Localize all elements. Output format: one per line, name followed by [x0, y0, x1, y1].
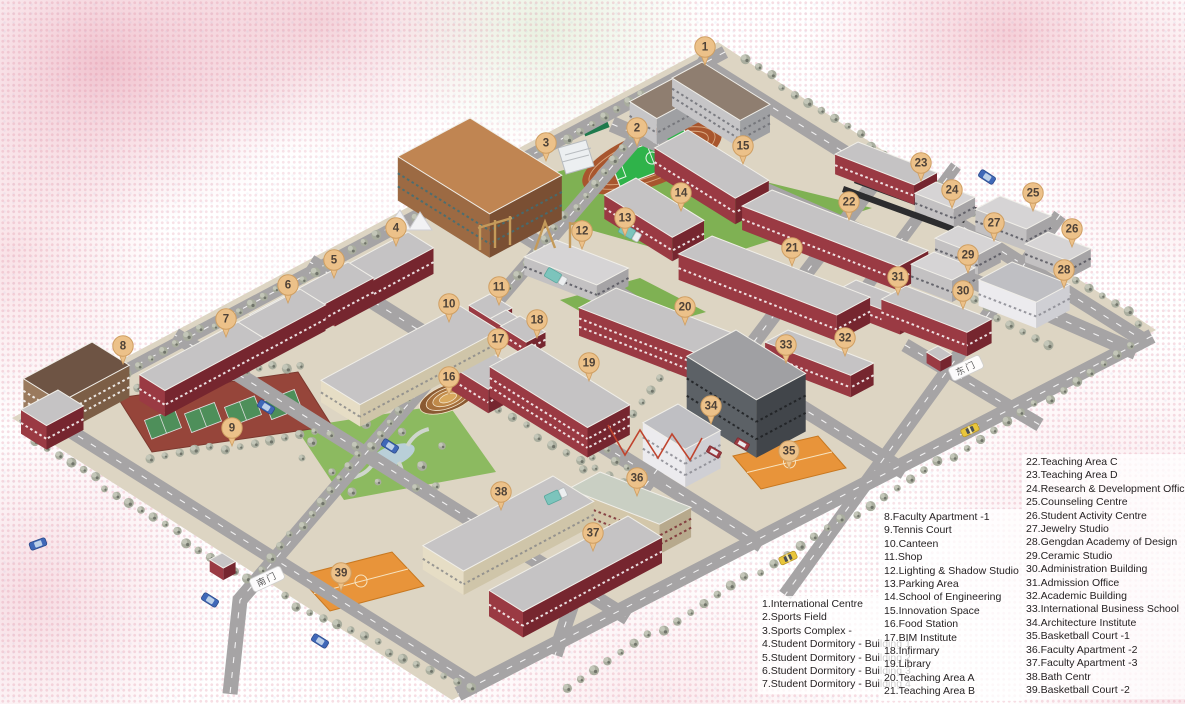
legend-item: 24.Research & Development Office	[1026, 483, 1185, 496]
svg-text:35: 35	[783, 446, 796, 458]
tree	[656, 374, 664, 382]
tree	[336, 475, 343, 482]
tree	[579, 465, 587, 473]
tree	[603, 657, 611, 665]
tree	[332, 619, 342, 629]
tree	[251, 440, 259, 448]
tree	[577, 676, 585, 684]
tree	[508, 413, 517, 422]
tree	[181, 538, 191, 548]
svg-text:22: 22	[843, 197, 856, 209]
tree	[398, 428, 406, 436]
svg-text:17: 17	[492, 334, 505, 346]
tree	[699, 599, 708, 608]
tree	[195, 547, 203, 555]
tree	[1124, 306, 1134, 316]
tree	[611, 457, 620, 466]
tree	[563, 449, 571, 457]
legend-item: 33.International Business School	[1026, 603, 1185, 616]
svg-text:37: 37	[587, 528, 600, 540]
tree	[375, 479, 382, 486]
tree	[644, 630, 652, 638]
tree	[375, 638, 382, 645]
svg-text:23: 23	[915, 158, 928, 170]
tree	[767, 70, 776, 79]
tree	[541, 235, 550, 244]
tree	[412, 484, 420, 492]
tree	[1016, 408, 1024, 416]
tree	[796, 541, 806, 551]
legend-item: 17.BIM Institute	[884, 632, 1019, 645]
tree	[281, 592, 289, 600]
tree	[1005, 321, 1014, 330]
legend-item: 10.Canteen	[884, 538, 1019, 551]
legend-item: 23.Teaching Area D	[1026, 469, 1185, 482]
svg-text:6: 6	[285, 280, 291, 292]
legend-item: 15.Innovation Space	[884, 605, 1019, 618]
tree	[438, 442, 446, 450]
car	[201, 592, 220, 608]
legend-block-3: 22.Teaching Area C23.Teaching Area D24.R…	[1022, 454, 1185, 699]
tree	[576, 456, 585, 465]
tree	[281, 434, 289, 442]
tree	[306, 609, 313, 616]
legend-item: 32.Academic Building	[1026, 590, 1185, 603]
tree	[237, 443, 244, 450]
tree	[162, 452, 169, 459]
tree	[600, 112, 609, 121]
legend-item: 18.Infirmary	[884, 645, 1019, 658]
svg-text:3: 3	[543, 138, 549, 150]
tree	[159, 347, 168, 356]
tree	[601, 168, 609, 176]
tree	[149, 512, 158, 521]
svg-text:16: 16	[443, 372, 456, 384]
tree	[845, 123, 852, 130]
tree	[803, 98, 813, 108]
tree	[1101, 360, 1108, 367]
tree	[551, 224, 559, 232]
tree	[440, 673, 447, 680]
tree	[196, 324, 204, 332]
tree	[385, 649, 393, 657]
tree	[920, 466, 928, 474]
tree	[547, 440, 557, 450]
svg-text:29: 29	[962, 250, 975, 262]
tree	[857, 130, 865, 138]
tree	[866, 501, 876, 511]
tree	[673, 617, 681, 625]
tree	[394, 406, 403, 415]
tree	[176, 449, 184, 457]
tree	[101, 486, 108, 493]
tree	[1084, 284, 1093, 293]
tree	[573, 204, 581, 212]
legend-item: 36.Faculty Apartment -2	[1026, 644, 1185, 657]
tree	[265, 436, 275, 446]
legend-item: 20.Teaching Area A	[884, 672, 1019, 685]
tree	[1031, 400, 1038, 407]
svg-text:21: 21	[786, 243, 799, 255]
tree	[757, 570, 764, 577]
legend-item: 21.Teaching Area B	[884, 685, 1019, 698]
tree	[824, 524, 831, 531]
tree	[894, 485, 901, 492]
tree	[80, 466, 88, 474]
tree	[319, 614, 327, 622]
car	[978, 169, 997, 185]
legend-item: 22.Teaching Area C	[1026, 456, 1185, 469]
tree	[347, 626, 355, 634]
tree	[836, 514, 845, 523]
svg-text:14: 14	[675, 188, 688, 200]
tree	[1135, 320, 1143, 328]
svg-text:20: 20	[679, 302, 692, 314]
legend-item: 25.Counseling Centre	[1026, 496, 1185, 509]
svg-text:38: 38	[495, 487, 508, 499]
tree	[55, 451, 63, 459]
svg-text:34: 34	[705, 401, 718, 413]
legend-item: 16.Food Station	[884, 618, 1019, 631]
tree	[347, 487, 356, 496]
tree	[91, 472, 100, 481]
tree	[146, 454, 155, 463]
tree	[291, 602, 300, 611]
tree	[629, 410, 637, 418]
tree	[316, 497, 326, 507]
legend-item: 31.Admission Office	[1026, 577, 1185, 590]
tree	[990, 427, 998, 435]
tree	[932, 456, 942, 466]
tree	[377, 431, 385, 439]
tree	[371, 230, 381, 240]
tree	[310, 267, 320, 277]
tree	[148, 355, 155, 362]
tree	[282, 364, 292, 374]
tree	[360, 239, 368, 247]
tree	[1002, 416, 1012, 426]
svg-text:4: 4	[393, 223, 400, 235]
tree	[1127, 342, 1135, 350]
tree	[453, 678, 461, 686]
tree	[266, 553, 276, 563]
tree	[778, 84, 785, 91]
legend-item: 29.Ceramic Studio	[1026, 550, 1185, 563]
svg-text:26: 26	[1066, 224, 1079, 236]
svg-text:33: 33	[780, 340, 793, 352]
svg-text:13: 13	[619, 213, 632, 225]
tree	[276, 542, 284, 550]
legend-item: 34.Architecture Institute	[1026, 617, 1185, 630]
tree	[260, 293, 268, 301]
svg-text:12: 12	[576, 226, 589, 238]
svg-text:32: 32	[839, 333, 852, 345]
tree	[367, 442, 377, 452]
tree	[1031, 334, 1039, 342]
tree	[360, 631, 369, 640]
tree	[755, 63, 763, 71]
tree	[135, 362, 143, 370]
tree	[659, 626, 669, 636]
svg-text:25: 25	[1027, 188, 1040, 200]
legend-item: 12.Lighting & Shadow Studio	[884, 565, 1019, 578]
tree	[432, 482, 440, 490]
tree	[466, 683, 476, 693]
car	[311, 633, 330, 649]
tree	[646, 385, 655, 394]
tree	[639, 399, 646, 406]
tree	[326, 430, 334, 438]
tree	[619, 144, 627, 152]
tree	[398, 654, 408, 664]
svg-text:19: 19	[583, 358, 596, 370]
tree	[818, 107, 826, 115]
tree	[613, 105, 621, 113]
svg-text:1: 1	[702, 42, 709, 54]
svg-text:28: 28	[1058, 265, 1071, 277]
tree	[286, 531, 293, 538]
legend-item: 38.Bath Centr	[1026, 671, 1185, 684]
svg-text:15: 15	[737, 141, 750, 153]
tree	[563, 134, 573, 144]
legend-item: 27.Jewelry Studio	[1026, 523, 1185, 536]
tree	[769, 559, 778, 568]
tree	[1072, 277, 1080, 285]
tree	[1099, 292, 1106, 299]
svg-text:30: 30	[957, 286, 970, 298]
tree	[1113, 350, 1122, 359]
tree	[221, 445, 230, 454]
tree	[328, 468, 336, 476]
tree	[299, 522, 308, 531]
tree	[137, 506, 145, 514]
tree	[513, 271, 523, 281]
legend-item: 14.School of Engineering	[884, 591, 1019, 604]
tree	[426, 666, 435, 675]
tree	[172, 340, 180, 348]
tree	[993, 315, 1001, 323]
tree	[326, 486, 334, 494]
legend-item: 11.Shop	[884, 551, 1019, 564]
tree	[624, 464, 631, 471]
tree	[1111, 299, 1119, 307]
tree	[347, 245, 356, 254]
tree	[295, 430, 304, 439]
tree	[1019, 328, 1026, 335]
tree	[976, 435, 985, 444]
tree	[950, 453, 958, 461]
tree	[1043, 340, 1053, 350]
tree	[589, 665, 599, 675]
legend-item: 39.Basketball Court -2	[1026, 684, 1185, 697]
tree	[183, 331, 193, 341]
tree	[740, 572, 748, 580]
tree	[247, 299, 257, 309]
tree	[609, 155, 619, 165]
legend-item: 19.Library	[884, 658, 1019, 671]
tree	[583, 193, 590, 200]
car	[29, 537, 48, 550]
legend-item: 37.Faculty Apartment -3	[1026, 657, 1185, 670]
legend-item: 30.Administration Building	[1026, 563, 1185, 576]
tree	[589, 121, 596, 128]
tree	[592, 465, 599, 472]
tree	[591, 179, 600, 188]
tree	[190, 445, 200, 455]
tree	[296, 362, 304, 370]
svg-text:5: 5	[331, 255, 338, 267]
tree	[523, 422, 530, 429]
tree	[112, 492, 120, 500]
tree	[344, 462, 353, 471]
tree	[830, 114, 839, 123]
tree	[534, 434, 542, 442]
tree	[413, 661, 421, 669]
tree	[1072, 377, 1082, 387]
legend-item: 9.Tennis Court	[884, 524, 1019, 537]
svg-text:24: 24	[946, 185, 959, 197]
tree	[299, 276, 307, 284]
tree	[726, 581, 736, 591]
tree	[1086, 369, 1094, 377]
tree	[299, 455, 306, 462]
svg-text:31: 31	[892, 272, 905, 284]
legend-block-2: 8.Faculty Apartment -19.Tennis Court10.C…	[880, 509, 1023, 701]
tree	[417, 461, 427, 471]
tree	[268, 361, 276, 369]
svg-text:39: 39	[335, 568, 348, 580]
legend-item: 28.Gengdan Academy of Design	[1026, 536, 1185, 549]
tree	[880, 493, 888, 501]
tree	[351, 441, 360, 450]
legend-item: 35.Basketball Court -1	[1026, 630, 1185, 643]
tree	[617, 649, 624, 656]
tree	[206, 443, 214, 451]
svg-text:7: 7	[223, 314, 229, 326]
tree	[853, 511, 861, 519]
legend-item: 26.Student Activity Centre	[1026, 510, 1185, 523]
tree	[354, 451, 362, 459]
tree	[906, 475, 915, 484]
tree	[810, 533, 818, 541]
tree	[630, 639, 639, 648]
tree	[964, 445, 971, 452]
tree	[311, 428, 318, 435]
tree	[740, 54, 750, 64]
tree	[309, 511, 317, 519]
svg-text:18: 18	[531, 315, 544, 327]
tree	[387, 419, 394, 426]
legend-item: 8.Faculty Apartment -1	[884, 511, 1019, 524]
tree	[563, 684, 572, 693]
tree	[173, 527, 181, 535]
tree	[236, 308, 244, 316]
svg-text:36: 36	[631, 473, 644, 485]
legend-item: 13.Parking Area	[884, 578, 1019, 591]
tree	[1060, 387, 1068, 395]
tree	[1046, 395, 1055, 404]
svg-text:11: 11	[493, 282, 506, 294]
svg-text:27: 27	[988, 218, 1001, 230]
tree	[162, 521, 169, 528]
tree	[307, 437, 317, 447]
tree	[576, 128, 584, 136]
svg-text:10: 10	[443, 299, 456, 311]
tree	[687, 609, 694, 616]
svg-text:8: 8	[120, 341, 127, 353]
tree	[124, 498, 134, 508]
tree	[791, 91, 799, 99]
svg-text:9: 9	[229, 423, 235, 435]
tree	[66, 458, 76, 468]
svg-text:2: 2	[634, 123, 640, 135]
tree	[714, 591, 722, 599]
